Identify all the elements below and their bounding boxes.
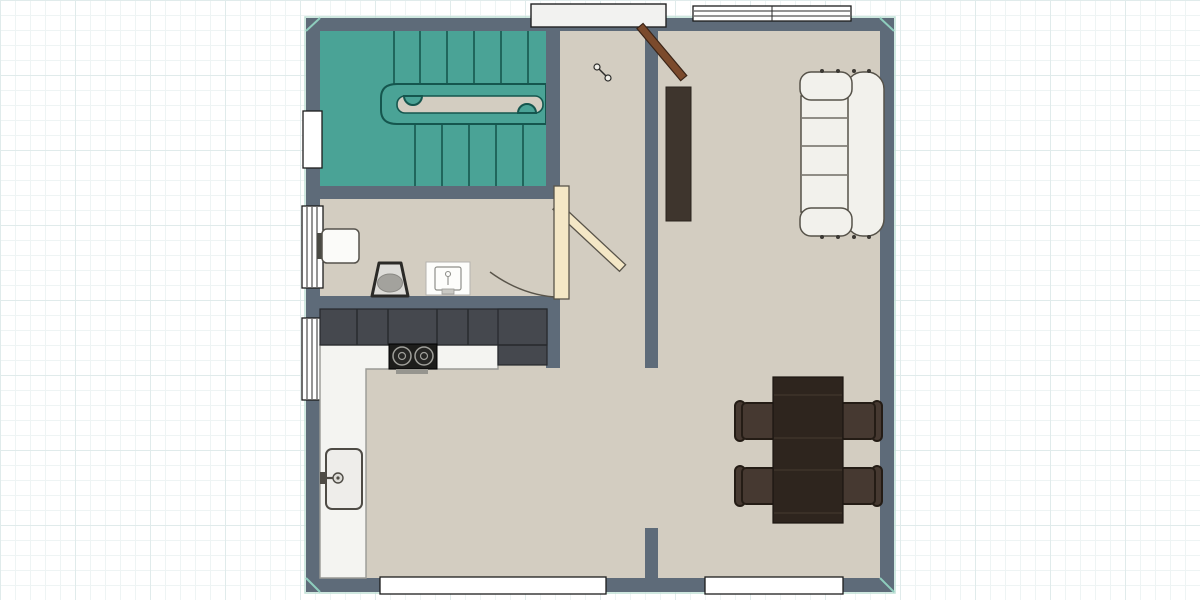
window-bottom-living[interactable] xyxy=(705,577,843,594)
dining-chair-left-top[interactable] xyxy=(735,401,777,441)
kitchen-sink[interactable] xyxy=(320,449,362,509)
cooktop[interactable] xyxy=(389,344,437,374)
wall-staircase-east[interactable] xyxy=(546,31,560,186)
entry-door-frame xyxy=(531,4,666,27)
wall-kitchen-east-stub[interactable] xyxy=(546,309,560,368)
console-shelf[interactable] xyxy=(666,87,691,221)
sofa-armrest-bottom xyxy=(800,208,852,236)
wall-bathroom-north[interactable] xyxy=(306,186,560,199)
wall-hall-partition-lower[interactable] xyxy=(645,528,658,578)
wall-hall-partition-upper[interactable] xyxy=(645,31,658,368)
stair-rail-curl-left xyxy=(404,96,422,105)
dining-table[interactable] xyxy=(773,377,843,523)
window-bottom-kitchen[interactable] xyxy=(380,577,606,594)
floor-plan-drawing xyxy=(0,0,1200,600)
dining-chair-left-bottom[interactable] xyxy=(735,466,777,506)
stair-rail-curl-right xyxy=(518,104,536,113)
floor-plan-editor-canvas xyxy=(0,0,1200,600)
dining-chair-right-bottom[interactable] xyxy=(840,466,882,506)
bathroom-door-leaf[interactable] xyxy=(554,186,569,299)
cooktop-handle xyxy=(396,369,428,374)
sofa[interactable] xyxy=(800,69,884,239)
window-top-right[interactable] xyxy=(693,6,851,21)
sofa-seat xyxy=(801,96,848,212)
dining-chair-right-top[interactable] xyxy=(840,401,882,441)
wall-basin[interactable] xyxy=(317,229,359,263)
tall-cabinet[interactable] xyxy=(498,309,547,365)
toilet[interactable] xyxy=(372,263,408,296)
window-left-staircase[interactable] xyxy=(303,111,322,168)
vanity-sink[interactable] xyxy=(426,262,470,295)
sofa-armrest-top xyxy=(800,72,852,100)
wall-bathroom-south[interactable] xyxy=(306,296,560,309)
sofa-backrest xyxy=(846,72,884,236)
